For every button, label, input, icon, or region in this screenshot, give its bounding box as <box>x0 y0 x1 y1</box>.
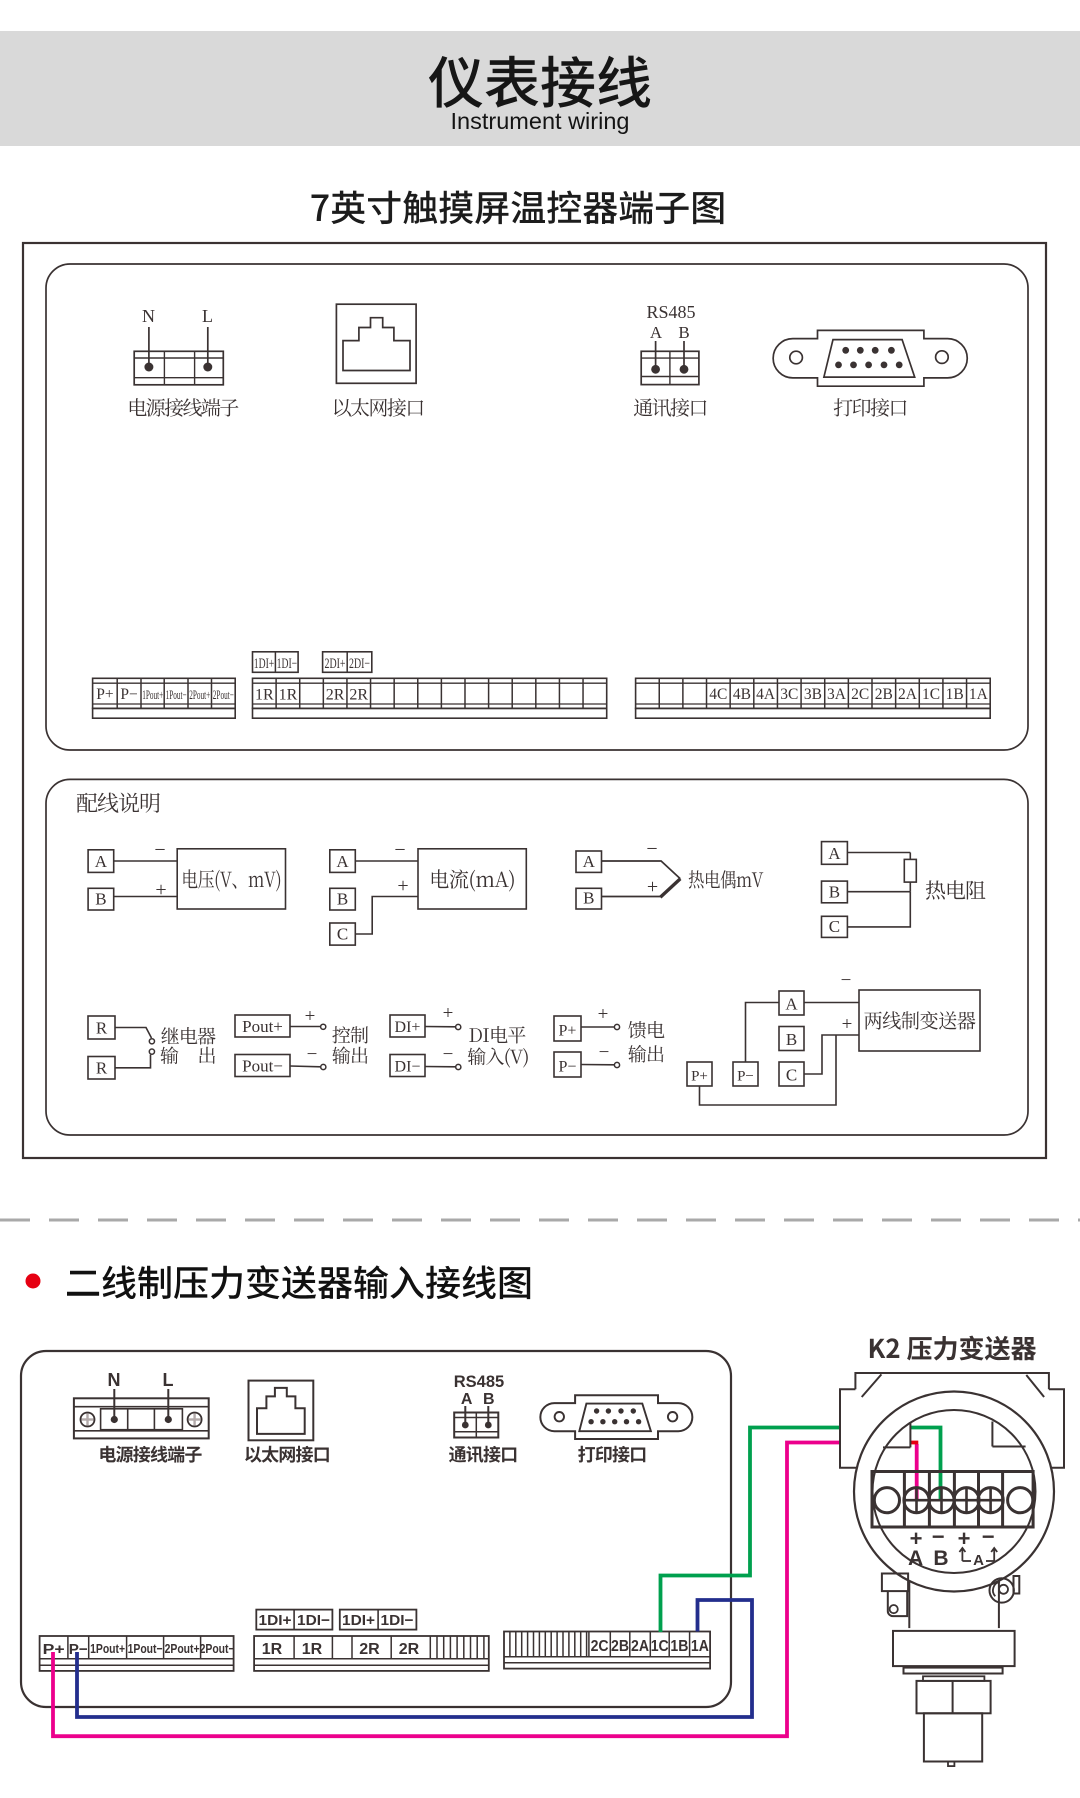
svg-text:RS485: RS485 <box>646 302 695 322</box>
svg-text:2DI−: 2DI− <box>349 656 370 672</box>
svg-text:1R: 1R <box>255 687 274 704</box>
svg-text:2R: 2R <box>359 1641 380 1658</box>
svg-text:A: A <box>650 323 663 342</box>
svg-text:C: C <box>337 925 348 944</box>
svg-text:C: C <box>829 917 840 936</box>
svg-text:C: C <box>786 1066 797 1085</box>
svg-text:4C: 4C <box>709 686 727 703</box>
svg-text:B: B <box>678 323 689 342</box>
svg-text:1DI−: 1DI− <box>381 1612 414 1629</box>
svg-text:4B: 4B <box>733 686 751 703</box>
svg-text:2R: 2R <box>349 687 368 704</box>
svg-text:2R: 2R <box>399 1641 420 1658</box>
svg-text:2C: 2C <box>851 686 869 703</box>
svg-text:1A: 1A <box>691 1638 709 1655</box>
svg-text:2B: 2B <box>611 1638 629 1655</box>
svg-text:−: − <box>599 1042 610 1063</box>
svg-text:P−: P− <box>737 1069 754 1085</box>
svg-text:B: B <box>337 890 348 909</box>
svg-text:DI+: DI+ <box>395 1019 421 1036</box>
svg-text:B: B <box>583 889 594 908</box>
svg-text:1Pout−: 1Pout− <box>128 1641 163 1656</box>
svg-text:1Pout+: 1Pout+ <box>142 688 163 702</box>
svg-text:2DI+: 2DI+ <box>325 656 346 672</box>
svg-text:B: B <box>933 1547 948 1570</box>
svg-text:2B: 2B <box>875 686 893 703</box>
svg-text:1DI−: 1DI− <box>297 1612 330 1629</box>
svg-text:L: L <box>202 306 213 326</box>
svg-text:DI−: DI− <box>395 1059 421 1076</box>
svg-text:P+: P+ <box>691 1069 708 1085</box>
svg-text:N: N <box>108 1370 121 1390</box>
svg-text:P−: P− <box>559 1059 577 1076</box>
svg-text:−: − <box>443 1044 454 1065</box>
svg-text:+: + <box>443 1003 454 1024</box>
svg-text:−: − <box>394 839 405 861</box>
svg-text:P−: P− <box>120 686 137 703</box>
svg-text:R: R <box>96 1019 108 1038</box>
svg-text:−: − <box>646 838 657 860</box>
svg-text:2Pout−: 2Pout− <box>213 688 234 702</box>
svg-text:L: L <box>163 1370 174 1390</box>
svg-text:Pout+: Pout+ <box>242 1017 283 1036</box>
svg-text:1R: 1R <box>262 1641 283 1658</box>
svg-text:1B: 1B <box>946 686 964 703</box>
svg-text:B: B <box>829 882 840 901</box>
svg-text:1DI+: 1DI+ <box>254 656 275 672</box>
svg-text:1DI+: 1DI+ <box>259 1612 292 1629</box>
svg-text:2A: 2A <box>631 1638 649 1655</box>
svg-text:B: B <box>483 1391 495 1408</box>
svg-text:2R: 2R <box>326 687 345 704</box>
svg-text:1C: 1C <box>651 1638 669 1655</box>
svg-text:1Pout−: 1Pout− <box>166 688 187 702</box>
svg-text:A: A <box>973 1552 984 1569</box>
svg-text:A: A <box>95 852 108 871</box>
svg-text:2C: 2C <box>591 1638 609 1655</box>
svg-text:2A: 2A <box>898 686 918 703</box>
svg-text:B: B <box>786 1030 797 1049</box>
svg-text:−: − <box>982 1524 995 1549</box>
svg-text:−: − <box>307 1044 318 1065</box>
svg-text:RS485: RS485 <box>454 1373 504 1391</box>
svg-text:1B: 1B <box>670 1638 688 1655</box>
svg-text:1DI−: 1DI− <box>277 656 298 672</box>
svg-text:R: R <box>96 1059 108 1078</box>
svg-text:A: A <box>828 844 841 863</box>
svg-text:1A: 1A <box>969 686 989 703</box>
svg-text:1R: 1R <box>279 687 298 704</box>
svg-text:3A: 3A <box>827 686 847 703</box>
svg-text:+: + <box>397 875 408 897</box>
svg-text:Pout−: Pout− <box>242 1057 283 1076</box>
svg-text:B: B <box>95 890 106 909</box>
svg-text:1DI+: 1DI+ <box>342 1612 375 1629</box>
svg-text:+: + <box>842 1014 853 1035</box>
svg-text:1C: 1C <box>922 686 940 703</box>
svg-text:−: − <box>932 1524 945 1549</box>
svg-text:A: A <box>461 1391 473 1408</box>
svg-text:A: A <box>583 852 596 871</box>
svg-text:A: A <box>908 1547 923 1570</box>
svg-text:1R: 1R <box>302 1641 323 1658</box>
svg-text:Instrument wiring: Instrument wiring <box>451 108 630 134</box>
svg-text:3C: 3C <box>780 686 798 703</box>
svg-text:+: + <box>598 1004 609 1025</box>
svg-text:P+: P+ <box>559 1023 577 1040</box>
svg-text:+: + <box>647 876 658 898</box>
svg-text:+: + <box>305 1006 316 1027</box>
svg-text:2Pout+: 2Pout+ <box>189 688 210 702</box>
svg-text:2Pout−: 2Pout− <box>200 1641 235 1656</box>
svg-text:3B: 3B <box>804 686 822 703</box>
svg-text:A: A <box>336 852 349 871</box>
svg-text:P+: P+ <box>96 686 113 703</box>
svg-text:A: A <box>785 995 798 1014</box>
svg-text:1Pout+: 1Pout+ <box>90 1641 125 1656</box>
svg-text:−: − <box>841 970 852 991</box>
svg-text:N: N <box>142 306 155 326</box>
svg-text:+: + <box>155 879 166 901</box>
svg-text:2Pout+: 2Pout+ <box>165 1641 200 1656</box>
svg-text:+: + <box>958 1526 971 1551</box>
svg-text:4A: 4A <box>756 686 776 703</box>
svg-text:−: − <box>154 839 165 861</box>
